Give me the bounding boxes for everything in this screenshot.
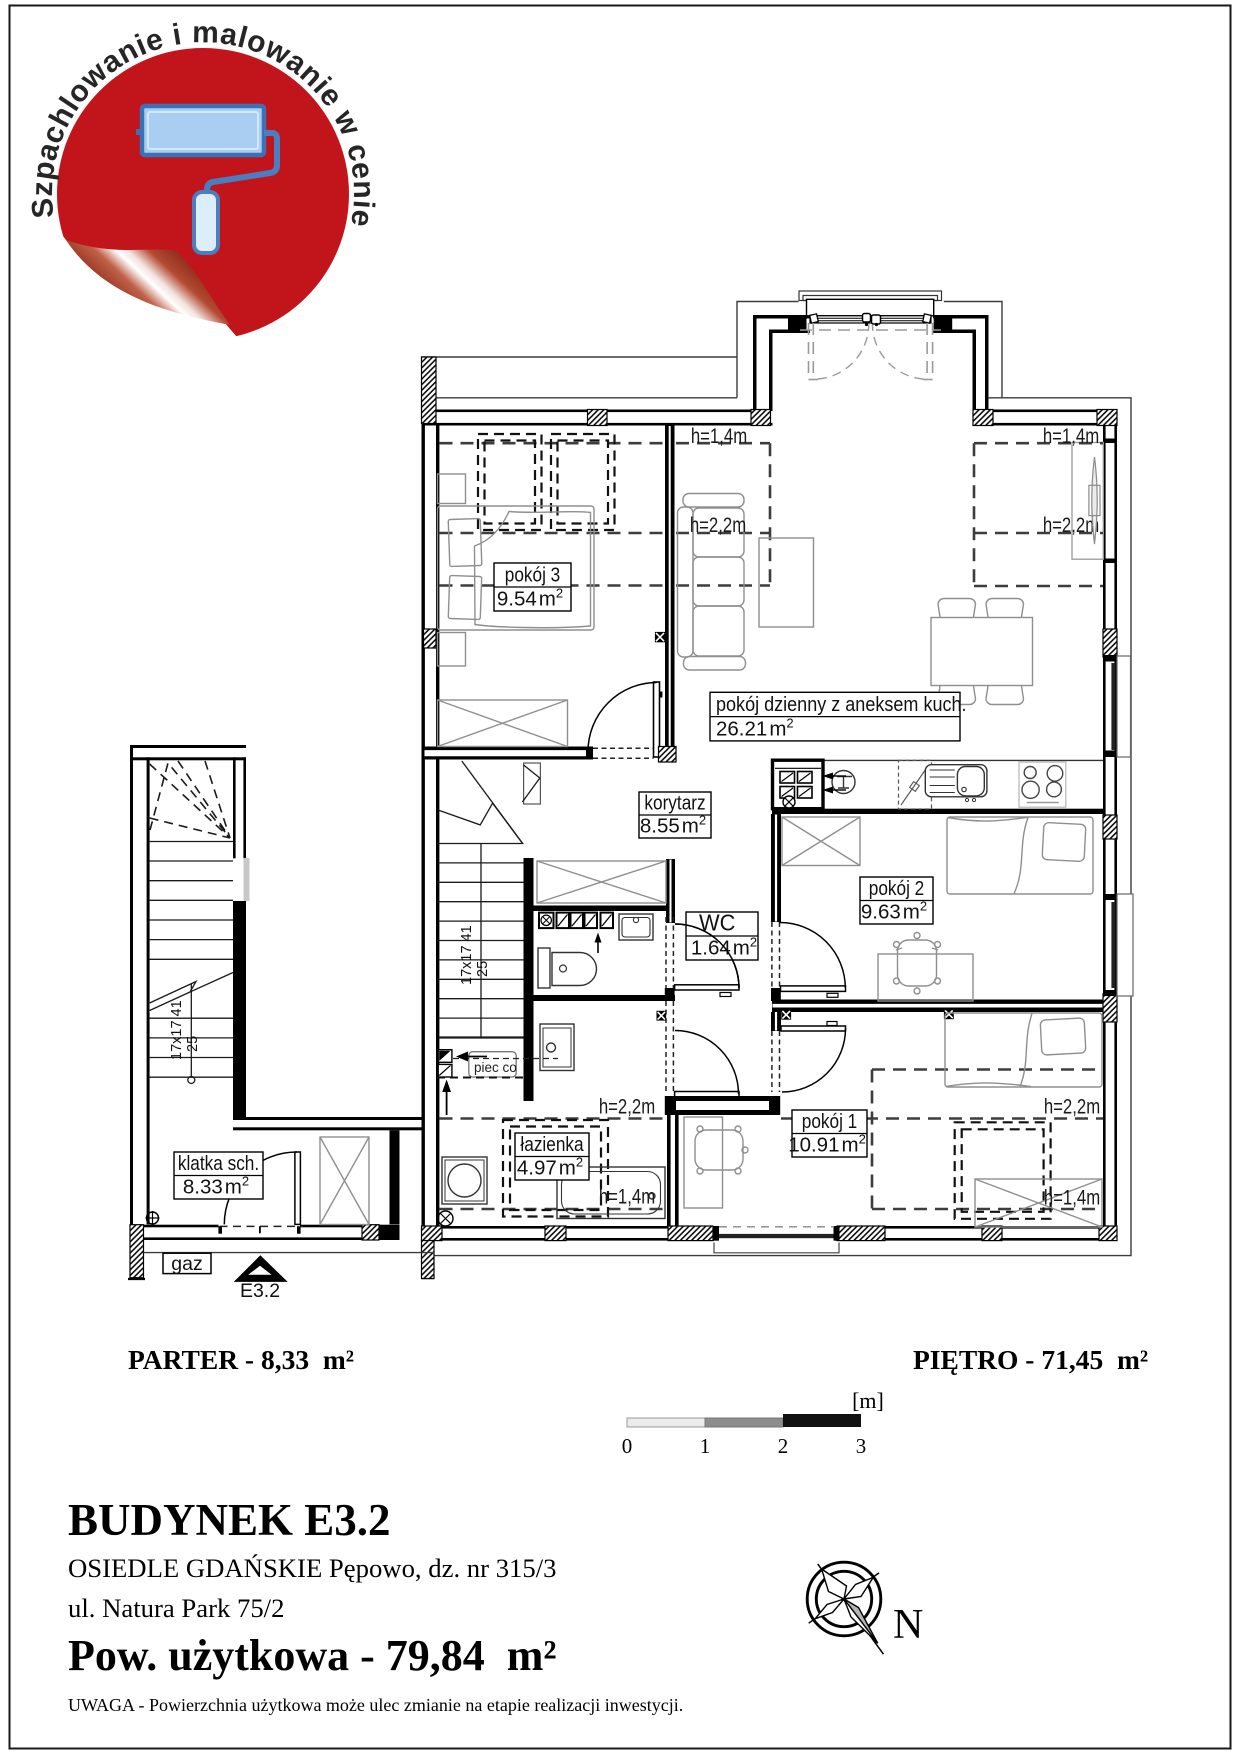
- svg-text:łazienka: łazienka: [520, 1134, 584, 1157]
- svg-text:BUDYNEK E3.2: BUDYNEK E3.2: [68, 1495, 391, 1545]
- svg-text:17x17 41: 17x17 41: [169, 1000, 185, 1060]
- svg-text:h=1,4m: h=1,4m: [1043, 425, 1099, 448]
- svg-text:pokój 1: pokój 1: [802, 1111, 858, 1134]
- svg-text:h=2,2m: h=2,2m: [690, 514, 746, 537]
- svg-text:OSIEDLE GDAŃSKIE Pępowo, dz. n: OSIEDLE GDAŃSKIE Pępowo, dz. nr 315/3: [68, 1553, 556, 1583]
- svg-text:10.91m2: 10.91m2: [788, 1132, 866, 1157]
- svg-text:PARTER - 8,33 m²: PARTER - 8,33 m²: [128, 1344, 354, 1375]
- svg-text:pokój dzienny z aneksem kuch.: pokój dzienny z aneksem kuch.: [716, 694, 967, 716]
- svg-text:25: 25: [475, 961, 491, 977]
- svg-text:4.97m2: 4.97m2: [517, 1155, 583, 1180]
- svg-text:8.55m2: 8.55m2: [640, 813, 706, 838]
- svg-text:25: 25: [185, 1036, 201, 1052]
- svg-text:[m]: [m]: [852, 1388, 884, 1413]
- svg-text:pokój 2: pokój 2: [869, 878, 925, 901]
- svg-text:korytarz: korytarz: [644, 792, 705, 815]
- svg-text:17x17 41: 17x17 41: [459, 925, 475, 985]
- svg-text:klatka sch.: klatka sch.: [178, 1153, 259, 1176]
- svg-text:piec co: piec co: [474, 1060, 517, 1075]
- svg-text:gaz: gaz: [171, 1253, 202, 1275]
- svg-text:N: N: [893, 1602, 923, 1648]
- svg-text:1: 1: [700, 1434, 711, 1458]
- svg-text:PIĘTRO - 71,45 m²: PIĘTRO - 71,45 m²: [913, 1344, 1148, 1375]
- svg-text:9.63m2: 9.63m2: [861, 899, 927, 924]
- svg-text:0: 0: [622, 1434, 633, 1458]
- svg-text:Pow. użytkowa - 79,84 m²: Pow. użytkowa - 79,84 m²: [68, 1631, 557, 1680]
- svg-text:UWAGA - Powierzchnia użytkowa: UWAGA - Powierzchnia użytkowa może ulec …: [68, 1695, 683, 1715]
- svg-text:h=1,4m: h=1,4m: [691, 425, 747, 448]
- svg-text:h=2,2m: h=2,2m: [599, 1096, 655, 1119]
- svg-text:E3.2: E3.2: [240, 1280, 280, 1302]
- svg-text:2: 2: [778, 1434, 789, 1458]
- svg-text:h=2,2m: h=2,2m: [1044, 1096, 1100, 1119]
- svg-text:3: 3: [856, 1434, 867, 1458]
- svg-text:8.33m2: 8.33m2: [183, 1174, 249, 1199]
- svg-text:pokój 3: pokój 3: [505, 564, 561, 587]
- svg-text:9.54m2: 9.54m2: [497, 586, 563, 611]
- svg-text:ul. Natura Park 75/2: ul. Natura Park 75/2: [68, 1593, 284, 1623]
- svg-text:h=1,4m: h=1,4m: [599, 1186, 655, 1209]
- svg-text:26.21m2: 26.21m2: [716, 716, 794, 741]
- svg-text:h=2,2m: h=2,2m: [1043, 514, 1099, 537]
- svg-text:h=1,4m: h=1,4m: [1044, 1187, 1100, 1210]
